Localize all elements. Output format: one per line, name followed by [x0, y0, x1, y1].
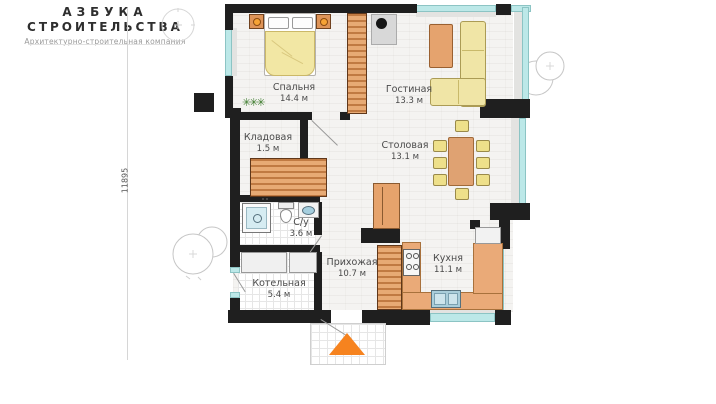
- boiler-unit: [289, 252, 317, 273]
- hook-icon: [262, 198, 264, 200]
- kitchen-counter: [473, 243, 503, 294]
- window: [430, 313, 495, 322]
- room-label-kitchen: Кухня 11.1 м: [433, 253, 463, 275]
- nightstand: [249, 14, 264, 29]
- bed: [264, 13, 316, 76]
- chair: [476, 174, 490, 186]
- wall: [230, 245, 320, 252]
- chair: [476, 157, 490, 169]
- room-label-dining: Столовая 13.1 м: [382, 140, 429, 162]
- drain-icon: [253, 214, 262, 223]
- wall: [230, 112, 312, 120]
- room-label-living: Гостиная 13.3 м: [386, 84, 432, 106]
- wall: [490, 203, 530, 220]
- shower-base: [246, 207, 267, 229]
- entrance-arrow-icon: [329, 333, 365, 355]
- chair: [455, 120, 469, 132]
- room-label-bedroom: Спальня 14.4 м: [273, 82, 315, 104]
- wall: [361, 228, 400, 243]
- room-label-boiler: Котельная 5.4 м: [252, 278, 305, 300]
- wood-partition: [347, 13, 367, 114]
- coffee-table: [429, 24, 453, 68]
- chair: [433, 140, 447, 152]
- chair: [455, 188, 469, 200]
- window: [416, 5, 496, 12]
- wall-corner-column: [495, 310, 511, 325]
- shower-tray: [242, 203, 271, 233]
- wall-pier: [194, 93, 214, 112]
- room-label-storage: Кладовая 1.5 м: [244, 132, 292, 154]
- chair: [433, 157, 447, 169]
- wall: [480, 99, 530, 118]
- wall: [225, 4, 417, 13]
- window-sill: [514, 11, 522, 111]
- chair: [433, 174, 447, 186]
- nightstand: [316, 14, 331, 29]
- room-label-bathroom: С/у 3.6 м: [290, 217, 313, 239]
- fridge: [475, 227, 501, 244]
- compass-icon: [158, 5, 200, 47]
- screenshot-root: { "brand": { "line1": "АЗБУКА", "line2":…: [0, 0, 716, 404]
- fireplace: [371, 14, 397, 45]
- blanket-fold: [271, 40, 292, 57]
- toilet-tank: [278, 202, 294, 209]
- boiler-unit: [241, 252, 287, 273]
- window-sill: [511, 118, 519, 206]
- stove-pipe-icon: [376, 18, 387, 29]
- entrance-opening: [331, 310, 362, 324]
- dining-table: [448, 137, 474, 186]
- blanket: [265, 31, 315, 76]
- kitchen-sink: [431, 290, 461, 308]
- hallway-wardrobe: [377, 245, 402, 310]
- lamp-icon: [253, 18, 261, 26]
- wardrobe: [250, 158, 327, 197]
- lamp-icon: [320, 18, 328, 26]
- window-sill: [232, 28, 237, 76]
- dimension-label: 11895: [121, 161, 130, 201]
- room-label-hallway: Прихожая 10.7 м: [327, 257, 378, 279]
- wall: [228, 310, 332, 323]
- floor-plan: ✳✳✳: [200, 2, 540, 374]
- sofa: [430, 78, 486, 106]
- blanket-fold: [282, 52, 304, 64]
- plant-icon: ✳✳✳: [242, 96, 264, 109]
- pillow: [268, 17, 289, 29]
- kitchen-tall-cabinet: [373, 183, 400, 229]
- wall-corner-column: [496, 4, 511, 15]
- window: [225, 28, 232, 76]
- window: [230, 267, 240, 273]
- sink-basin: [448, 293, 458, 305]
- wall: [225, 4, 233, 30]
- hook-icon: [266, 198, 268, 200]
- wall: [300, 120, 308, 158]
- window: [522, 7, 529, 112]
- bathroom-sink: [298, 202, 319, 218]
- sink-basin: [302, 206, 315, 215]
- stove: [403, 249, 420, 276]
- pillow: [292, 17, 313, 29]
- sink-basin: [434, 293, 446, 305]
- chair: [476, 140, 490, 152]
- window: [519, 118, 526, 206]
